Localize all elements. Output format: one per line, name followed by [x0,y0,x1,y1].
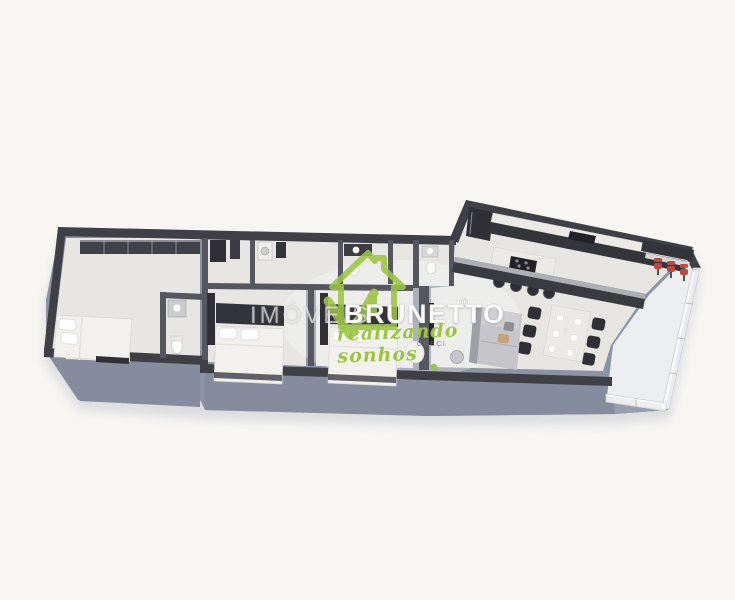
wardrobe-3 [320,293,328,345]
master-double-bed [54,315,132,364]
wardrobe-2 [207,293,215,345]
accent-cushion [497,333,509,343]
refrigerator [466,207,493,241]
plant [431,364,438,371]
side-table [451,351,464,364]
tv-panel [429,303,434,345]
bedroom-3 [320,293,398,386]
floor-plan-render: IMÓVEIS BRUNETTO ® realizando sonhos CRE… [0,0,735,600]
headboard-3 [330,304,398,327]
wardrobe-ribbon-windows [80,240,200,254]
washer [258,242,272,260]
toilet-2 [349,264,359,276]
headboard-2 [216,303,284,326]
floor-plan-svg [0,0,735,600]
bedroom-2 [207,293,284,384]
l-shaped-sofa [469,306,522,370]
